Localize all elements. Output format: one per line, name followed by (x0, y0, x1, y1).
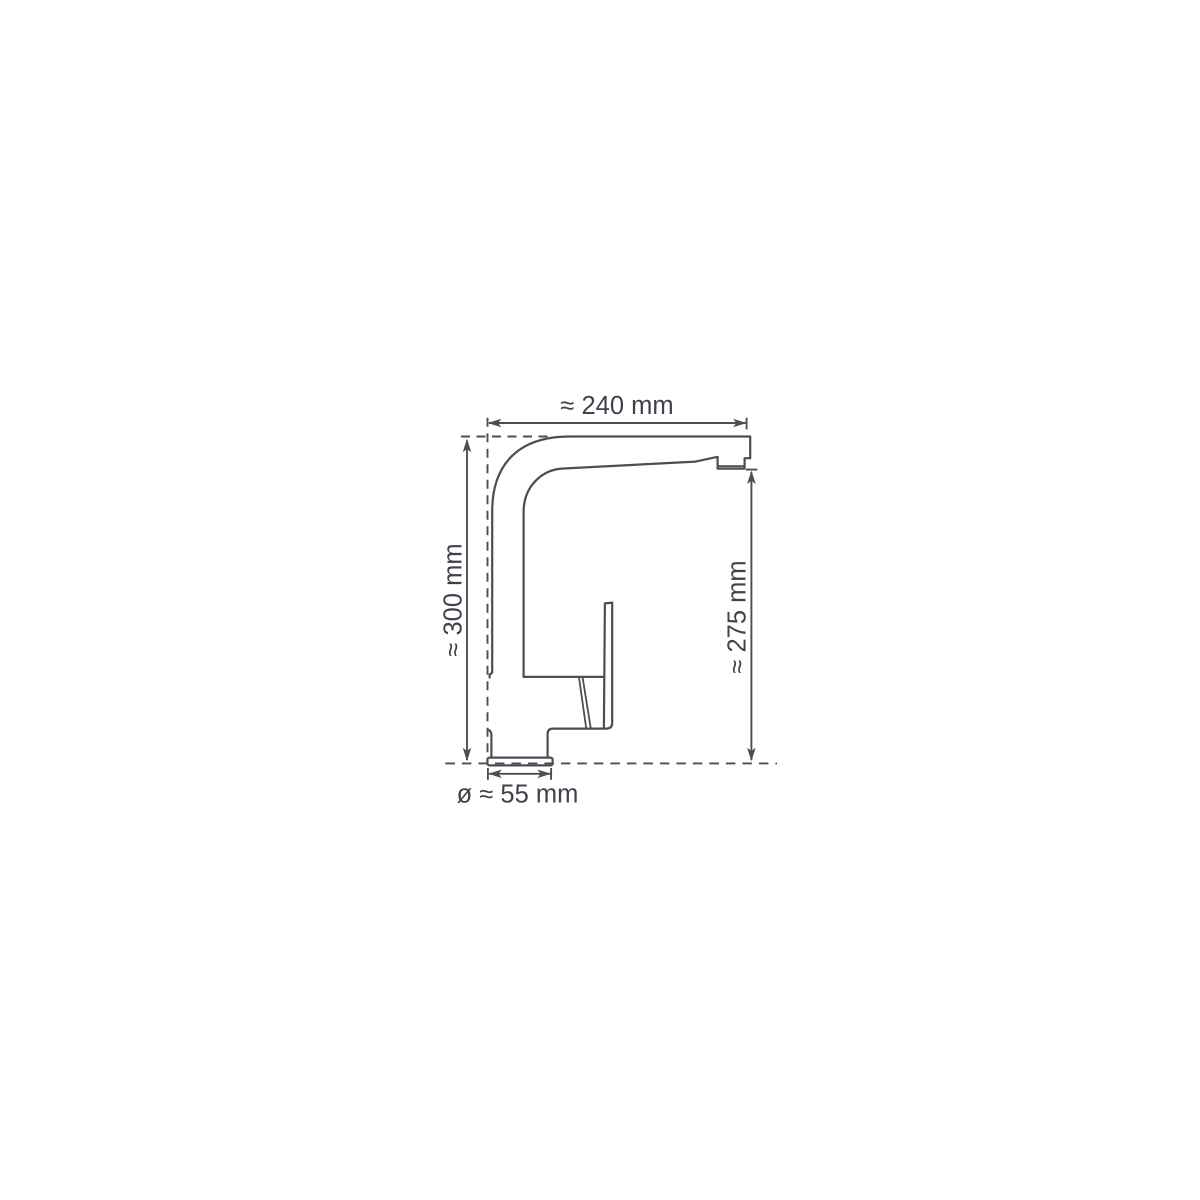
dimension-left-total-height: ≈ 300 mm (440, 439, 472, 761)
housing-seam-line (579, 677, 586, 728)
faucet-outline (490, 437, 751, 678)
dimension-bottom-base-diameter: ø ≈ 55 mm (457, 768, 579, 809)
dimension-right-outlet-height: ≈ 275 mm (724, 470, 758, 762)
handle-joint-line (583, 677, 591, 727)
faucet-drawing (487, 437, 750, 766)
dimension-label-total-height: ≈ 300 mm (440, 543, 468, 656)
dimension-label-base-diameter: ø ≈ 55 mm (457, 781, 579, 809)
faucet-dimension-diagram: ≈ 240 mm ≈ 300 mm ≈ 275 mm ø ≈ 55 mm (0, 0, 1200, 1200)
dimension-drawing-canvas: ≈ 240 mm ≈ 300 mm ≈ 275 mm ø ≈ 55 mm (0, 0, 1200, 1200)
dimension-label-outlet-height: ≈ 275 mm (724, 560, 752, 673)
dimension-label-spout-reach: ≈ 240 mm (560, 392, 673, 420)
dimension-top-spout-reach: ≈ 240 mm (488, 392, 747, 429)
